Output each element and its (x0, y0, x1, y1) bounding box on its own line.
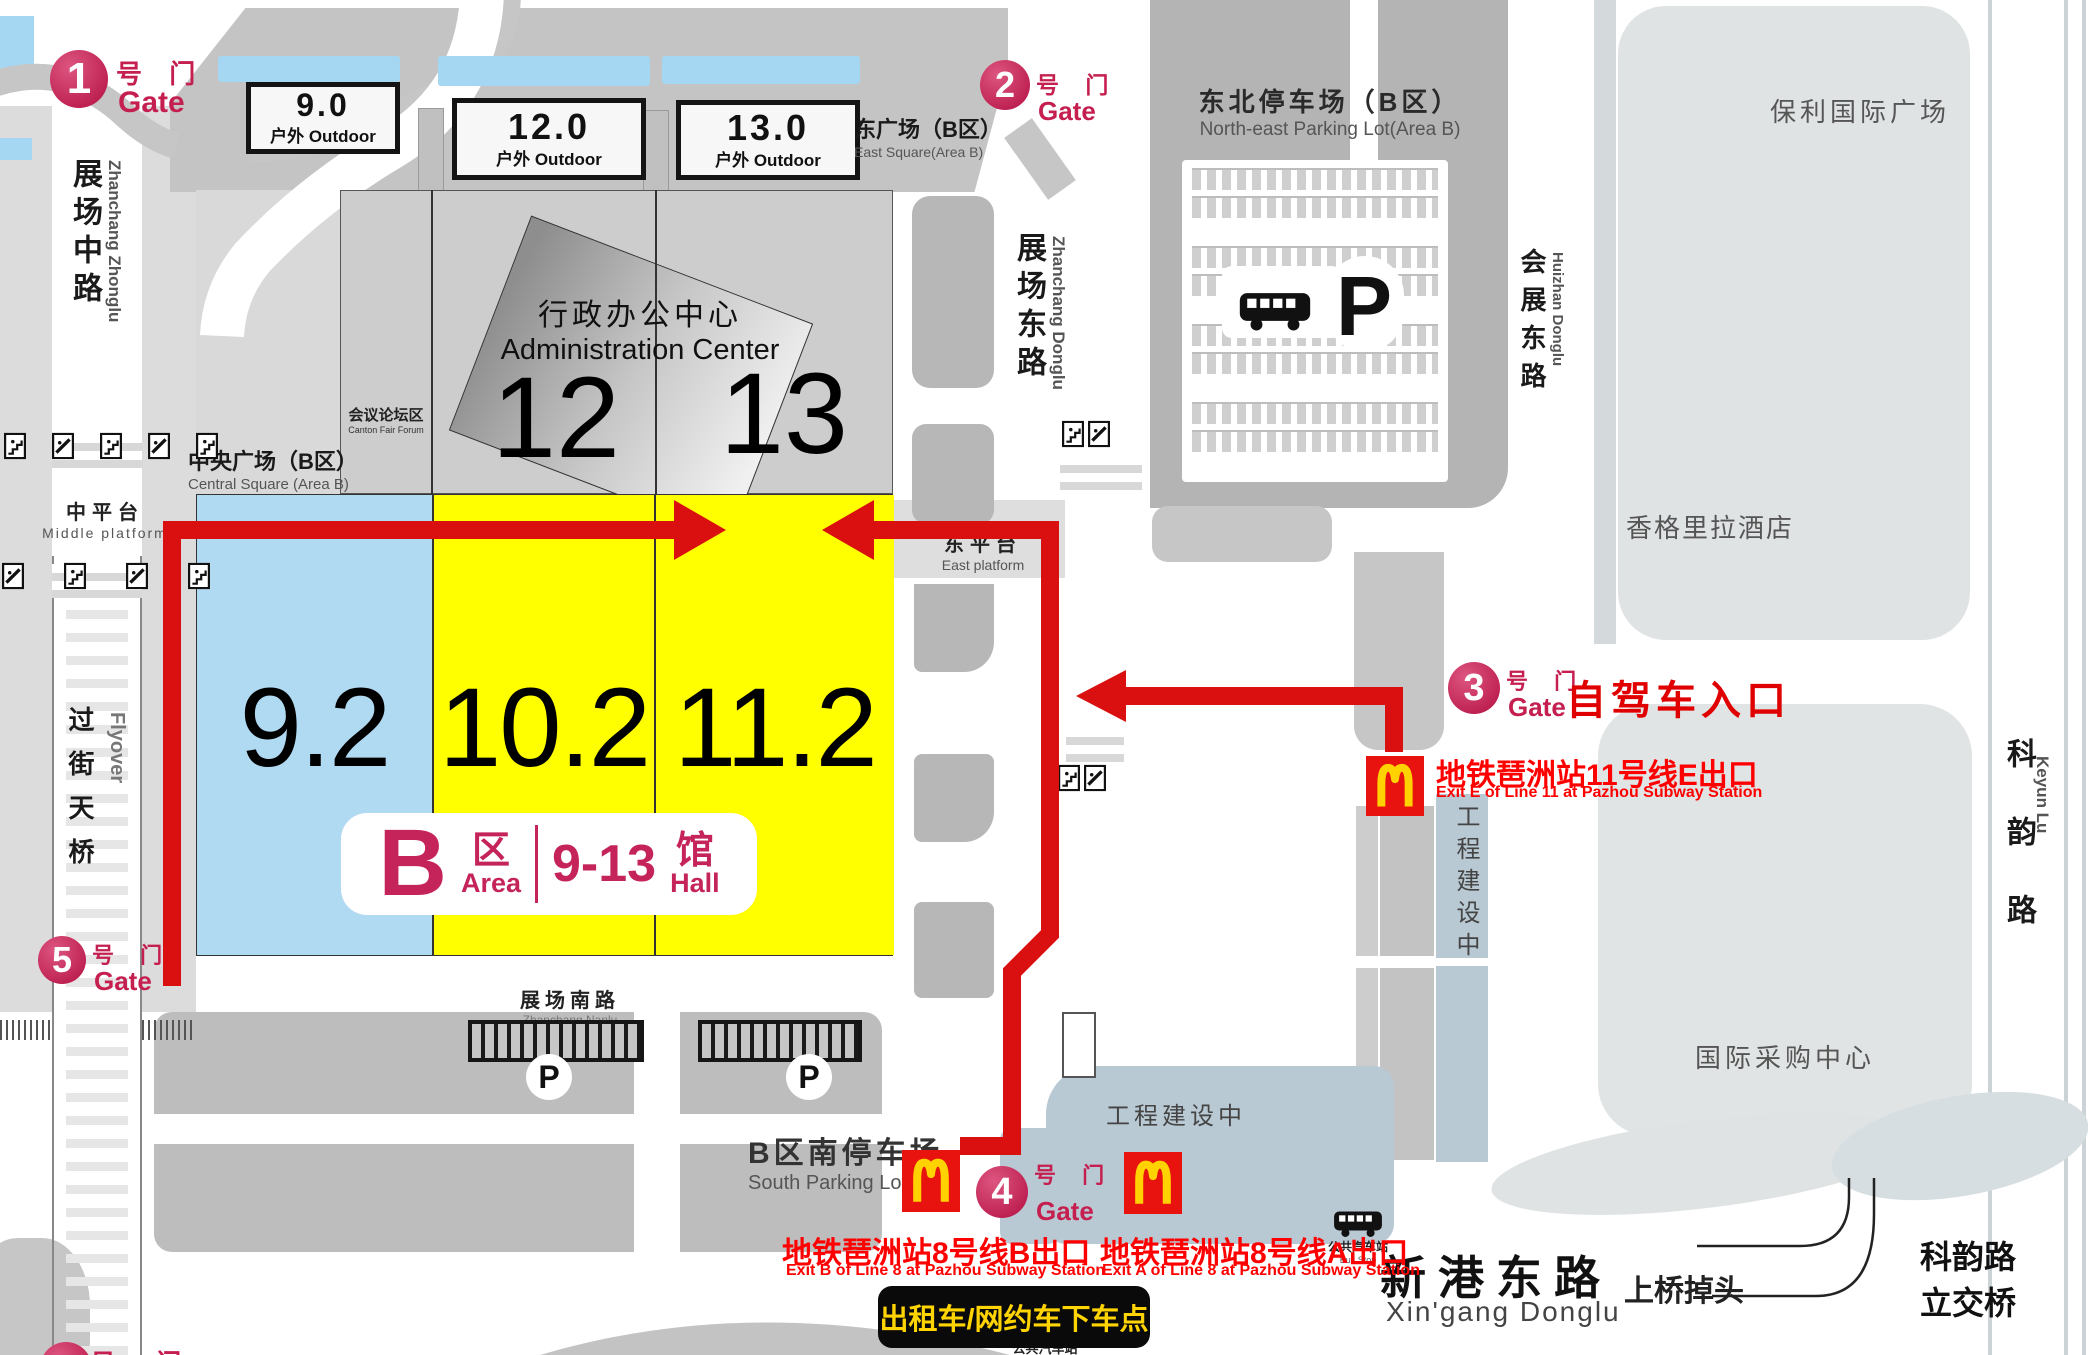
escalator-icons-pair (1062, 420, 1110, 448)
outdoor-12-0-box: 12.0 户外 Outdoor (452, 98, 646, 180)
poly-plaza-label: 保利国际广场 (1700, 92, 1950, 129)
gate-1-label-en: Gate (118, 86, 185, 120)
crosswalk (1060, 458, 1142, 490)
east-square-label: 东广场（B区） East Square(Area B) (854, 112, 1002, 160)
stairs-icon (188, 562, 210, 590)
construction-label: 工程建设中 (1106, 1096, 1246, 1131)
subway-exit-e-en: Exit E of Line 11 at Pazhou Subway Stati… (1436, 784, 1762, 802)
escalator-icons-pair (1058, 764, 1106, 792)
parking-p-circle: P (786, 1054, 832, 1100)
area-b-qu: 区 (472, 832, 510, 870)
subway-exit-a-en: Exit A of Line 8 at Pazhou Subway Statio… (1102, 1262, 1420, 1280)
gate-3-badge: 3 (1448, 662, 1500, 714)
area-b-range: 9-13 (552, 834, 656, 894)
escalator-icon (52, 432, 74, 460)
venue-map-canton-fair-area-b: P 行政办公中心 Administration Center (0, 0, 2088, 1355)
stair-comb (142, 1020, 192, 1040)
gate-5-label-en: Gate (94, 966, 152, 997)
escalator-icons-row (4, 432, 218, 460)
hall-divider (431, 190, 433, 494)
construction-vertical-label: 工程建设中 (1448, 804, 1483, 964)
route-arrow-left (1076, 670, 1126, 722)
parking-row (1192, 352, 1438, 374)
zhanchang-zhonglu-label: 展场中路 (62, 158, 106, 310)
zhanchang-donglu-pinyin: Zhanchang Donglu (1048, 236, 1068, 390)
stairs-icon (196, 432, 218, 460)
parking-row (1192, 196, 1438, 218)
parking-p-circle: P (526, 1054, 572, 1100)
crosswalk (1066, 734, 1124, 762)
road-strip (1356, 806, 1378, 956)
northeast-parking-label: 东北停车场（B区） North-east Parking Lot(Area B) (1170, 82, 1490, 141)
escalator-icon (148, 432, 170, 460)
road-edge (2082, 0, 2086, 1355)
parking-row (1192, 430, 1438, 452)
parking-row (1192, 246, 1438, 268)
flyover-pinyin: Flyover (105, 712, 128, 783)
escalator-icon (1084, 764, 1106, 792)
water-strip (218, 56, 400, 82)
platform-building (914, 584, 994, 672)
gate-5-badge: 5 (38, 936, 86, 984)
stair-comb (0, 1020, 50, 1040)
bridge-connector (643, 110, 669, 194)
hall-13-number: 13 (720, 348, 840, 480)
uturn-label: 上桥掉头 (1624, 1266, 1744, 1310)
gate-2-label-cn: 号 门 (1036, 66, 1118, 100)
water-strip (438, 56, 650, 86)
east-platform-label: 东平台 East platform (918, 528, 1048, 573)
gate-4-label-cn: 号 门 (1034, 1158, 1114, 1190)
shangrila-label: 香格里拉酒店 (1626, 508, 1794, 545)
stairs-icon (4, 432, 26, 460)
construction-strip (1436, 966, 1488, 1162)
stairs-icon (1058, 764, 1080, 792)
mcdonalds-icon-exit-b (902, 1150, 960, 1212)
area-b-guan: 馆 (676, 832, 714, 870)
middle-platform-label: 中平台 Middle platform (40, 496, 170, 541)
platform-building (912, 424, 994, 524)
area-b-badge: B 区 Area 9-13 馆 Hall (341, 813, 757, 915)
badge-divider (535, 825, 538, 903)
parking-row (1192, 168, 1438, 190)
hall-12-number: 12 (492, 352, 612, 484)
road-strip (1380, 806, 1434, 956)
platform-building (914, 754, 994, 842)
road-island (1354, 552, 1444, 750)
outdoor-9-0-box: 9.0 户外 Outdoor (246, 82, 400, 154)
zhanchang-donglu-label: 展场东路 (1006, 232, 1050, 384)
keyun-lu-pinyin: Keyun Lu (2032, 756, 2052, 833)
xingang-donglu-label-en: Xin'gang Donglu (1386, 1296, 1621, 1328)
parking-strip (698, 1020, 862, 1062)
escalator-icon (2, 562, 24, 590)
water-strip (662, 56, 860, 84)
area-b-hall: Hall (670, 870, 720, 897)
mcdonalds-icon-exit-e (1366, 756, 1424, 816)
forum-label: 会议论坛区 Canton Fair Forum (342, 404, 430, 435)
self-drive-entrance-label: 自驾车入口 (1566, 668, 1791, 726)
road-edge (1594, 0, 1616, 644)
parking-row (1192, 402, 1438, 424)
keyun-interchange-label: 科韵路 立交桥 (1920, 1232, 2016, 1324)
huizhan-donglu-pinyin: Huizhan Donglu (1549, 252, 1566, 366)
gate-4-label-en: Gate (1036, 1196, 1094, 1227)
gate-3-label-en: Gate (1508, 692, 1566, 723)
stairs-icon (1062, 420, 1084, 448)
stairs-icon (100, 432, 122, 460)
water-strip (0, 138, 32, 160)
stairs-icon (64, 562, 86, 590)
outdoor-13-0-box: 13.0 户外 Outdoor (676, 100, 860, 180)
subway-exit-b-en: Exit B of Line 8 at Pazhou Subway Statio… (786, 1262, 1105, 1280)
gate-1-badge: 1 (50, 50, 108, 108)
gate-partial-label-cn: 号 门 (90, 1344, 197, 1355)
left-sidewalk-east (142, 106, 196, 1012)
crossing-box (1062, 1012, 1096, 1078)
escalator-icon (1088, 420, 1110, 448)
platform-building (912, 196, 994, 388)
platform-building (914, 902, 994, 998)
zhanchang-zhonglu-pinyin: Zhanchang Zhonglu (104, 160, 124, 322)
escalator-icons-row (2, 562, 210, 590)
gate-2-label-en: Gate (1038, 96, 1096, 127)
road-island (1152, 506, 1332, 562)
sourcing-center-label: 国际采购中心 (1640, 1038, 1930, 1075)
gate-2-badge: 2 (980, 60, 1030, 110)
huizhan-donglu-label: 会展东路 (1514, 248, 1551, 400)
water-strip (0, 16, 34, 78)
bridge-connector (418, 108, 444, 194)
flyover-label: 过街天桥 (62, 706, 99, 882)
bus-icon (1236, 282, 1314, 332)
gate-4-badge: 4 (976, 1166, 1028, 1218)
escalator-icon (126, 562, 148, 590)
left-sidewalk-west (0, 106, 52, 1012)
area-b-letter: B (378, 821, 447, 907)
parking-p: P (1336, 258, 1392, 355)
mcdonalds-icon-exit-a (1124, 1152, 1182, 1214)
taxi-dropoff-badge: 出租车/网约车下车点 (878, 1286, 1150, 1348)
area-b-area: Area (461, 870, 521, 897)
